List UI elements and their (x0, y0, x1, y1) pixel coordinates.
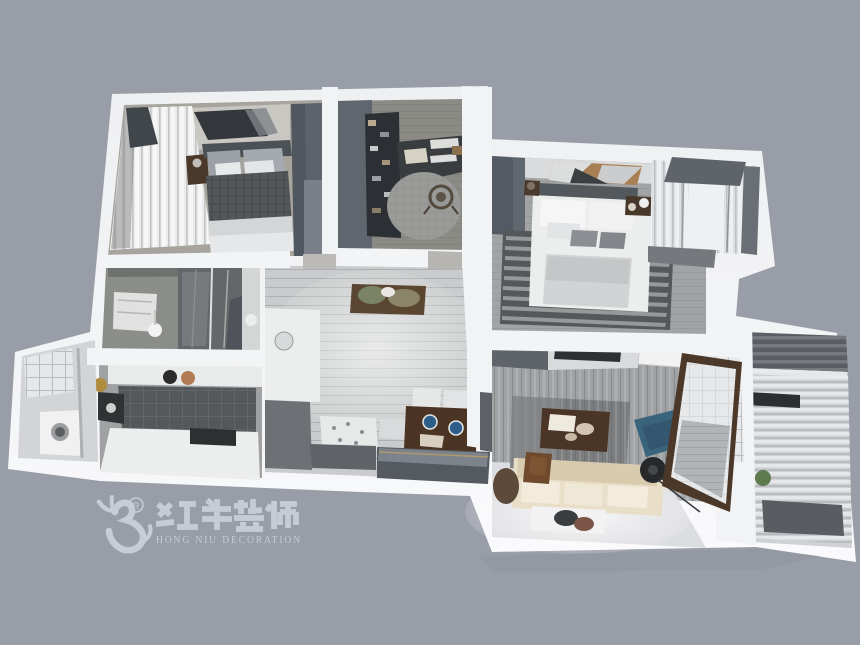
svg-text:HONG NIU DECORATION: HONG NIU DECORATION (156, 535, 302, 546)
svg-text:R: R (133, 501, 140, 512)
